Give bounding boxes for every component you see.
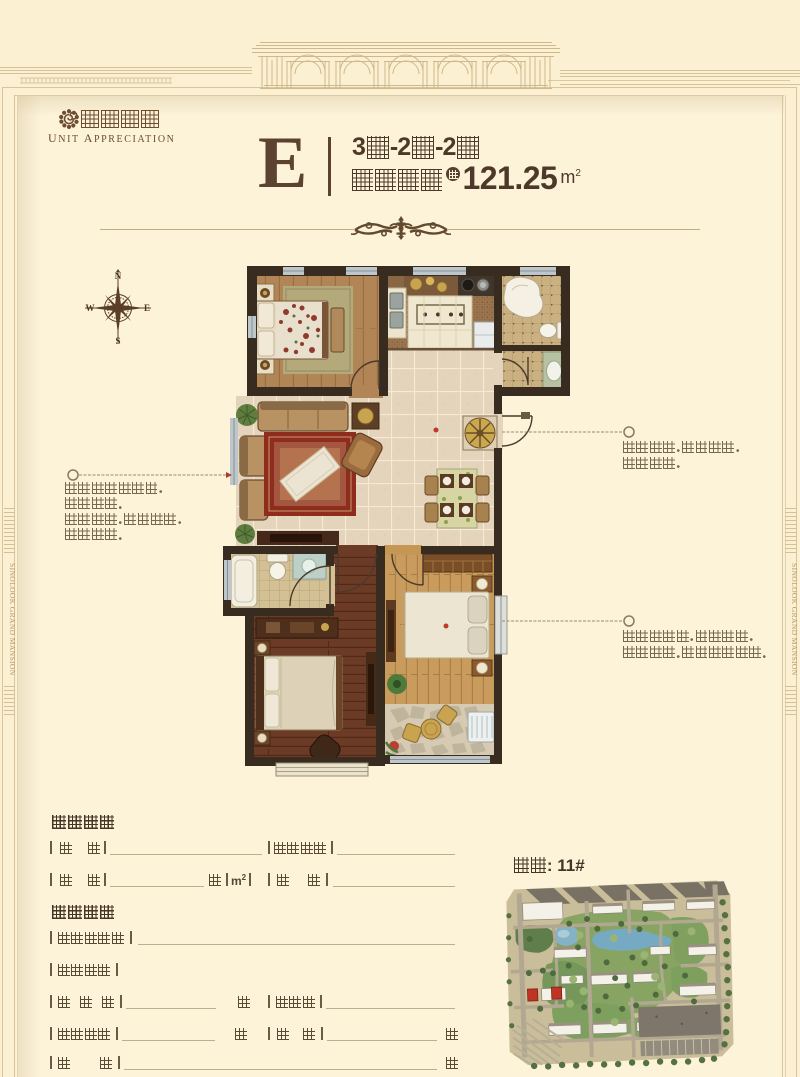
svg-text:W: W (86, 303, 95, 313)
svg-text:N: N (115, 271, 122, 281)
svg-text:E: E (144, 303, 150, 313)
svg-text:S: S (115, 336, 120, 346)
